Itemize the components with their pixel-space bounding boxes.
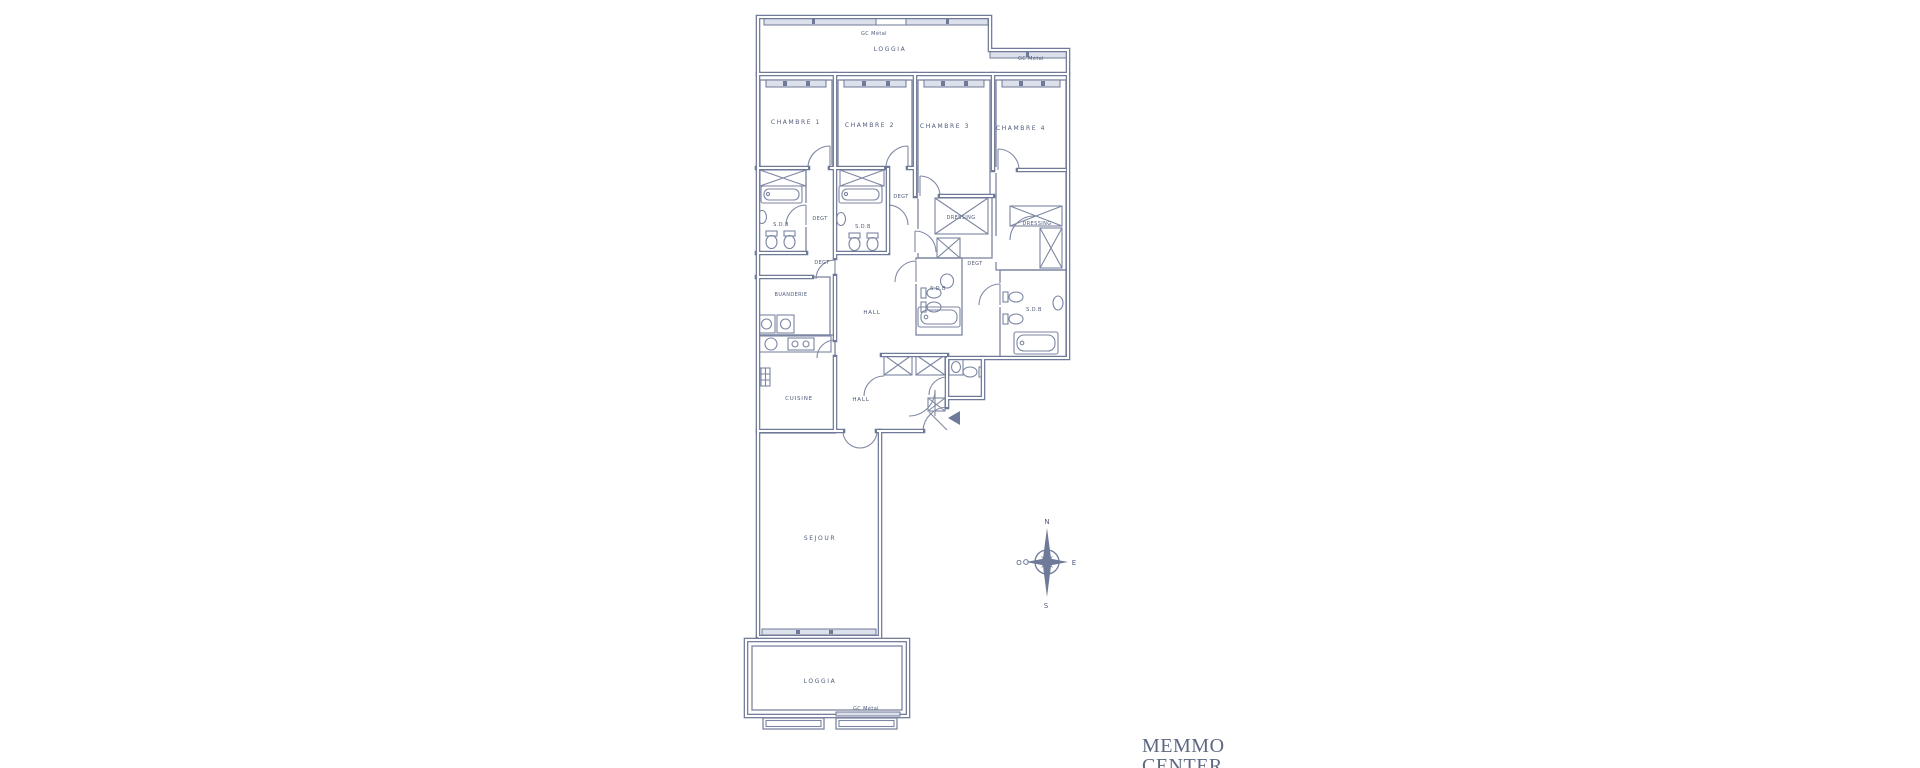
brand-line-1: MEMMO: [1142, 735, 1225, 757]
wardrobe-closet: [760, 170, 806, 186]
door-arc: [817, 340, 835, 358]
room-dressing-1: [918, 196, 992, 258]
wardrobe-closet: [884, 355, 912, 375]
planter: [763, 718, 824, 729]
label-gc-metal: GC Métal: [861, 30, 887, 37]
label-dressing-1: DRESSING: [946, 215, 975, 221]
compass-star: [1038, 553, 1056, 571]
window-band: [1002, 80, 1060, 87]
label-loggia-top: LOGGIA: [874, 46, 907, 53]
label-gc-metal: GC Métal: [853, 705, 879, 712]
toilet: [849, 233, 860, 251]
wardrobe-closet: [937, 238, 960, 258]
label-degt-2: DEGT: [814, 260, 830, 266]
label-cuisine: CUISINE: [785, 396, 813, 402]
door-arc: [1010, 216, 1034, 240]
door-swings: [786, 146, 1034, 448]
window-band: [762, 629, 876, 635]
bedroom-bottom-wall: [757, 168, 1066, 196]
label-chambre-4: CHAMBRE 4: [996, 125, 1046, 132]
compass-label-west: O: [1016, 559, 1022, 567]
room-labels: LOGGIA GC Métal GC Métal CHAMBRE 1 CHAMB…: [771, 30, 1052, 712]
floor-plan-drawing: LOGGIA GC Métal GC Métal CHAMBRE 1 CHAMB…: [0, 0, 1920, 768]
door-arc: [808, 146, 830, 168]
toilet: [766, 231, 777, 249]
label-degt-4: DEGT: [967, 261, 983, 267]
bathtub: [1014, 332, 1058, 354]
kitchen-sink: [765, 338, 777, 350]
toilet: [784, 231, 795, 249]
scanned-floor-plan-page: LOGGIA GC Métal GC Métal CHAMBRE 1 CHAMB…: [0, 0, 1920, 768]
outer-wall: [758, 431, 923, 637]
toilet: [1003, 314, 1023, 324]
label-hall-entrance: HALL: [852, 397, 869, 403]
washing-machine: [758, 315, 775, 333]
wardrobe-closet: [916, 355, 945, 375]
label-buanderie: BUANDERIE: [775, 292, 808, 298]
label-chambre-1: CHAMBRE 1: [771, 119, 821, 126]
label-chambre-2: CHAMBRE 2: [845, 122, 895, 129]
room-outlines: [757, 80, 1066, 433]
toilet: [867, 233, 878, 251]
door-arc: [886, 146, 908, 168]
label-sdb-1: S.D.B: [773, 222, 789, 228]
door-arc: [979, 284, 1000, 305]
sejour-window: [762, 629, 876, 635]
door-arc: [895, 261, 916, 282]
brand-line-2: CENTER: [1142, 755, 1223, 768]
door-arc: [864, 376, 884, 396]
planter: [836, 718, 897, 729]
compass-label-south: S: [1044, 602, 1049, 610]
door-arc: [998, 149, 1019, 170]
label-dressing-2: DRESSING: [1022, 221, 1051, 227]
compass-rose-icon: N S O E: [1016, 518, 1076, 610]
wardrobe-closet: [1040, 228, 1062, 268]
sink: [837, 213, 846, 226]
sink: [949, 359, 963, 375]
double-door-arc: [843, 431, 877, 448]
brand-mark: MEMMO CENTER: [1142, 735, 1225, 768]
compass-label-north: N: [1044, 518, 1049, 526]
window-band: [836, 712, 900, 716]
room-dressing-2: [996, 170, 1066, 270]
label-degt-3: DEGT: [893, 194, 909, 200]
toilet: [1003, 292, 1023, 302]
entrance-arrow-icon: [948, 411, 960, 425]
label-gc-metal: GC Métal: [1018, 55, 1044, 62]
compass-label-east: E: [1072, 559, 1076, 567]
bathtub: [761, 186, 802, 203]
door-arc: [909, 390, 935, 416]
window-band: [924, 80, 984, 87]
sink: [1053, 296, 1063, 310]
label-hall-upper: HALL: [863, 310, 880, 316]
wardrobe-closet: [840, 170, 884, 186]
label-sdb-2: S.D.B: [855, 224, 871, 230]
label-loggia-bottom: LOGGIA: [804, 678, 837, 685]
window-band: [766, 80, 826, 87]
bathtub: [839, 186, 882, 203]
room-chambre-3: [918, 80, 990, 196]
label-degt-1: DEGT: [812, 216, 828, 222]
label-chambre-3: CHAMBRE 3: [920, 123, 970, 130]
label-sdb-4: S.D.B: [1026, 307, 1042, 313]
label-sejour: SEJOUR: [804, 535, 836, 542]
room-sdb-1: [757, 168, 806, 253]
window-band: [844, 80, 906, 87]
kitchen-fixtures: [757, 315, 831, 386]
label-sdb-3: S.D.B: [930, 286, 946, 292]
room-sdb-2: [836, 168, 888, 253]
stove: [788, 338, 814, 350]
washing-machine: [777, 315, 794, 333]
